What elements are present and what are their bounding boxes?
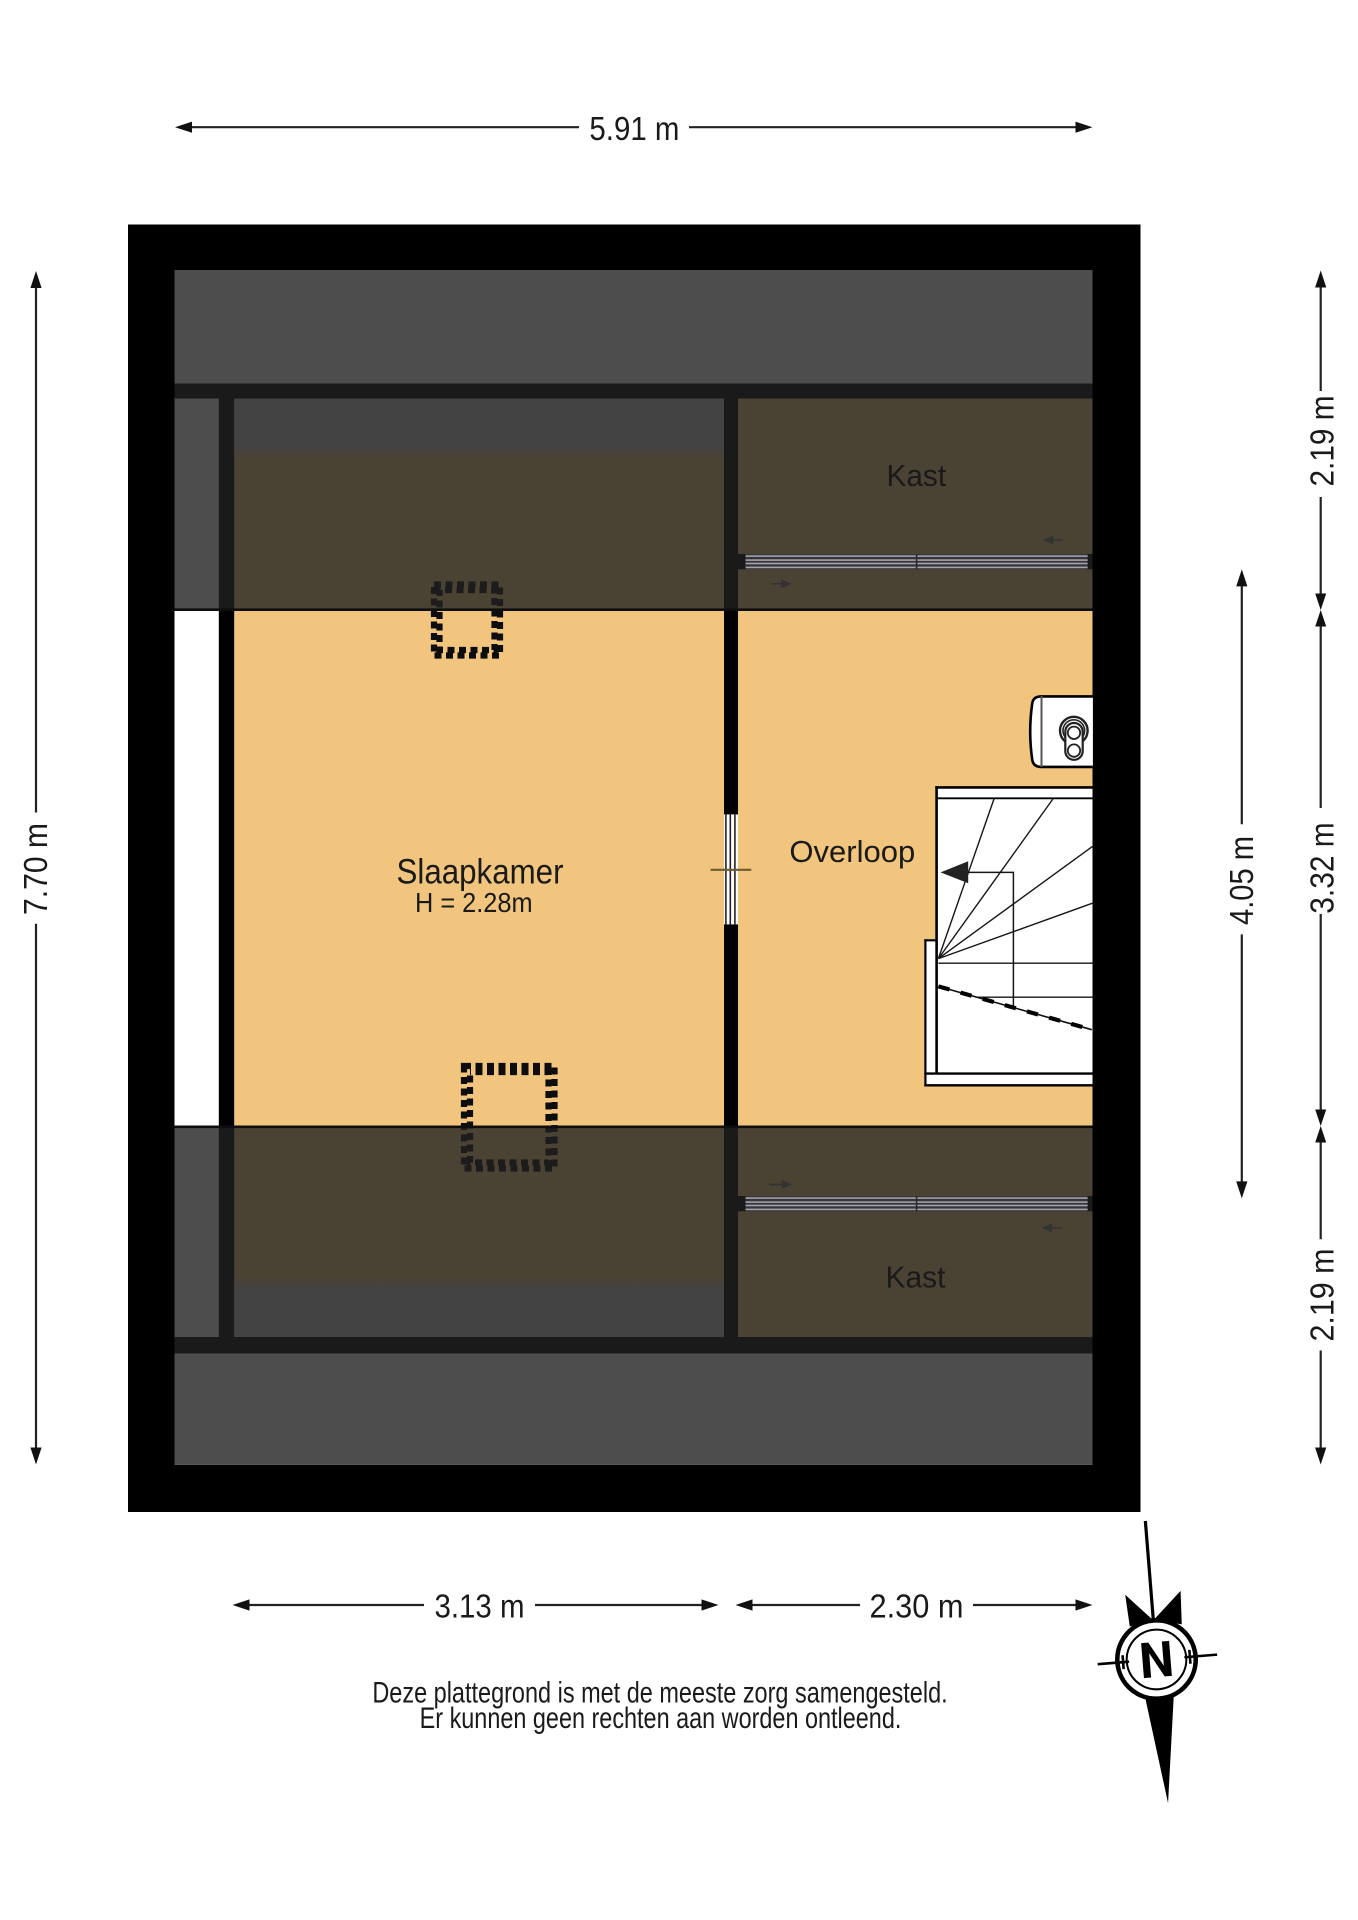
svg-text:2.19 m: 2.19 m <box>1305 396 1342 487</box>
svg-text:3.13 m: 3.13 m <box>435 1589 525 1626</box>
svg-text:Kast: Kast <box>887 458 947 493</box>
svg-text:Slaapkamer: Slaapkamer <box>397 851 564 891</box>
svg-text:Er kunnen geen rechten aan wor: Er kunnen geen rechten aan worden ontlee… <box>420 1702 902 1735</box>
svg-text:Overloop: Overloop <box>789 834 915 869</box>
svg-text:4.05 m: 4.05 m <box>1224 836 1261 925</box>
svg-text:Kast: Kast <box>886 1259 946 1294</box>
svg-text:2.19 m: 2.19 m <box>1305 1249 1342 1342</box>
svg-text:5.91 m: 5.91 m <box>589 111 679 148</box>
svg-text:2.30 m: 2.30 m <box>870 1589 964 1626</box>
svg-text:H = 2.28m: H = 2.28m <box>415 887 533 918</box>
svg-text:7.70 m: 7.70 m <box>18 823 55 915</box>
svg-text:3.32 m: 3.32 m <box>1305 822 1342 913</box>
